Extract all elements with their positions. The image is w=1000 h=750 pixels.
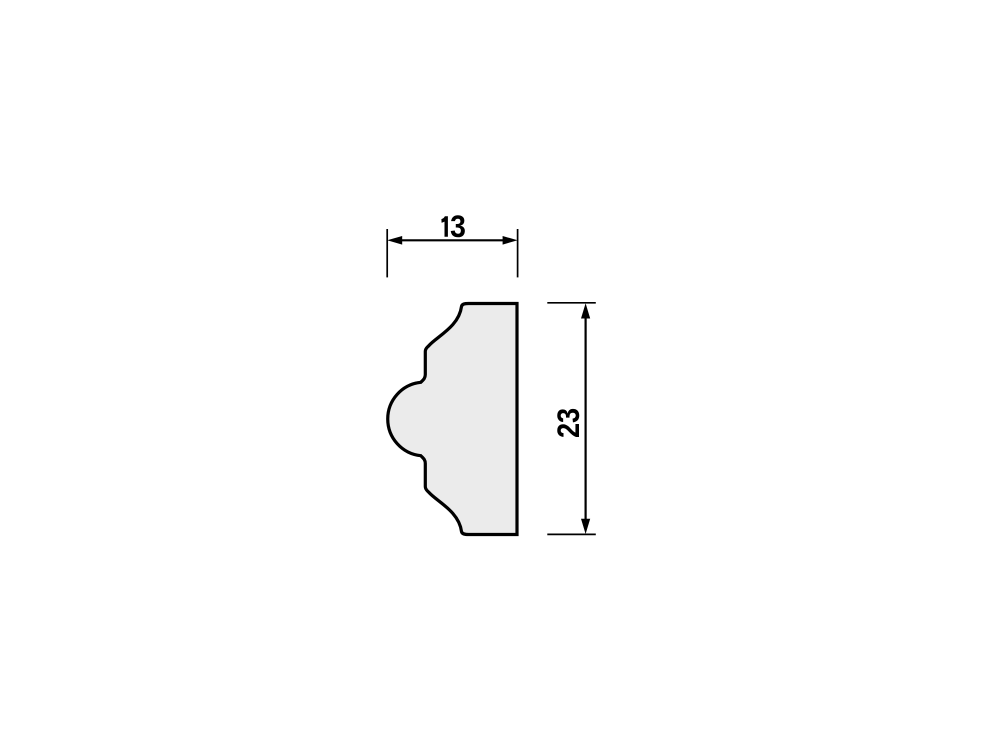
- svg-text:3: 3: [450, 209, 466, 244]
- svg-text:23: 23: [551, 408, 586, 438]
